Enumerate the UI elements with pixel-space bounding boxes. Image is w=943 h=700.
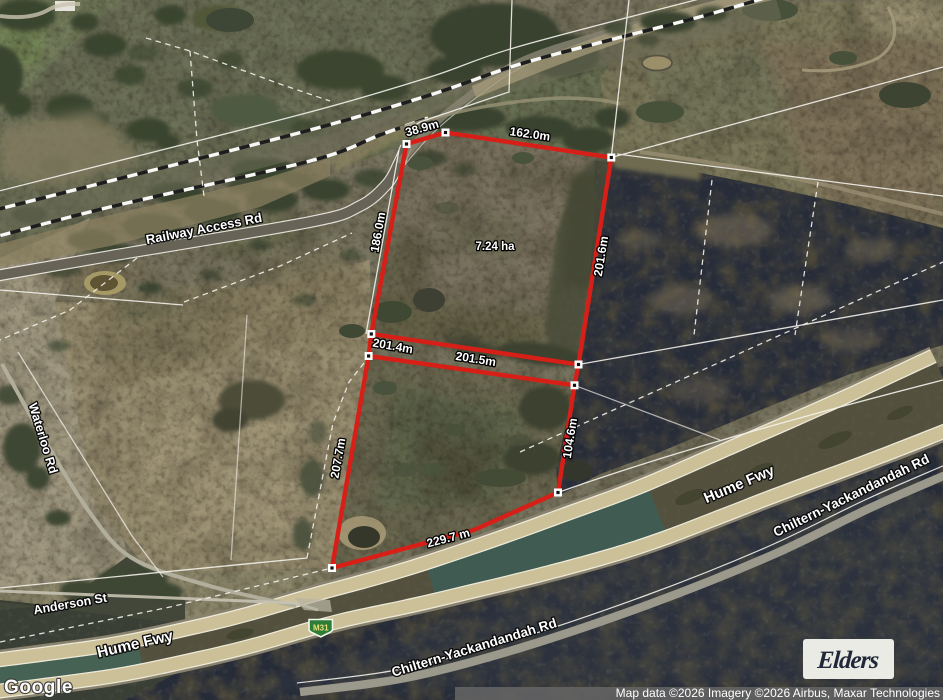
svg-text:Map data ©2026 Imagery ©2026 A: Map data ©2026 Imagery ©2026 Airbus, Max… [616, 686, 940, 700]
svg-text:Elders: Elders [816, 647, 880, 674]
svg-text:Google: Google [4, 677, 73, 698]
svg-text:M31: M31 [313, 624, 329, 633]
svg-text:7.24 ha: 7.24 ha [476, 241, 516, 253]
